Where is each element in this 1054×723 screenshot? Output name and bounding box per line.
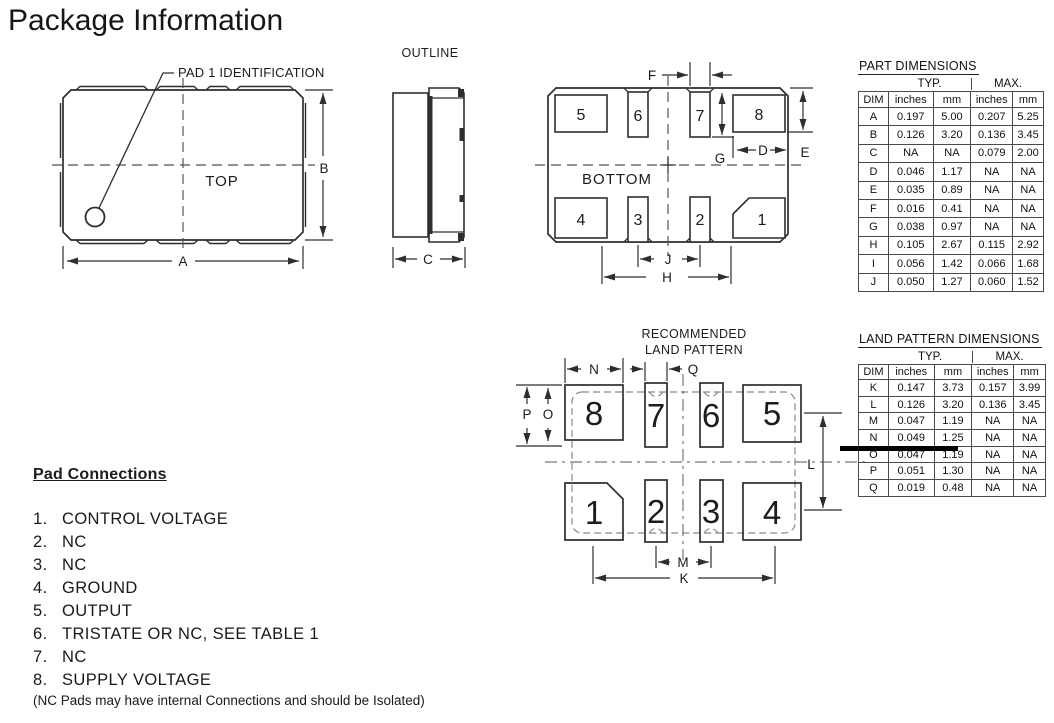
dimension-cell: 0.136 xyxy=(971,126,1013,144)
dimension-row: K0.1473.730.1573.99 xyxy=(859,380,1046,397)
dim-label-a: A xyxy=(178,254,187,269)
dimension-cell: 1.19 xyxy=(934,413,972,430)
dimension-cell: 5.25 xyxy=(1013,108,1044,126)
dimension-row: I0.0561.420.0661.68 xyxy=(859,255,1044,273)
dimension-row: H0.1052.670.1152.92 xyxy=(859,236,1044,254)
dimension-row: P0.0511.30NANA xyxy=(859,463,1046,480)
dimension-cell: 0.016 xyxy=(888,199,933,217)
col-header-max-mm: mm xyxy=(1013,92,1044,108)
dim-label-h: H xyxy=(662,270,672,285)
bottom-pad-7-number: 7 xyxy=(696,108,705,125)
dimension-cell: 0.035 xyxy=(888,181,933,199)
dimension-cell: NA xyxy=(1013,163,1044,181)
dimension-cell: 0.079 xyxy=(971,144,1013,162)
col-header-max-inches: inches xyxy=(971,92,1013,108)
part-dimensions-group-headers: TYP. MAX. xyxy=(858,78,1044,90)
dimension-row: N0.0491.25NANA xyxy=(859,430,1046,447)
dimension-cell: NA xyxy=(1014,446,1046,463)
dimension-row: D0.0461.17NANA xyxy=(859,163,1044,181)
pad-connection-function: TRISTATE OR NC, SEE TABLE 1 xyxy=(62,623,319,646)
dimension-cell: 3.20 xyxy=(934,396,972,413)
land-pad-1-number: 1 xyxy=(585,494,603,531)
bottom-pad-1-number: 1 xyxy=(758,212,767,229)
dimension-cell: 0.197 xyxy=(888,108,933,126)
dimension-cell: 3.20 xyxy=(933,126,971,144)
dimension-cell: NA xyxy=(888,144,933,162)
dimension-cell: NA xyxy=(933,144,971,162)
dim-label-q: Q xyxy=(688,362,699,377)
dimension-cell: 0.051 xyxy=(888,463,934,480)
dimension-cell: 0.060 xyxy=(971,273,1013,291)
dimension-cell: 3.45 xyxy=(1013,126,1044,144)
dimension-cell: 0.207 xyxy=(971,108,1013,126)
dim-label-k: K xyxy=(679,571,688,586)
dimension-row: E0.0350.89NANA xyxy=(859,181,1044,199)
outline-pad-marks xyxy=(458,89,464,241)
dimension-cell: E xyxy=(859,181,889,199)
strike-line xyxy=(840,446,958,451)
bottom-view: 5 6 7 8 4 3 2 1 BOTTOM F G xyxy=(535,62,813,285)
dimension-cell: B xyxy=(859,126,889,144)
dim-e xyxy=(787,88,813,132)
part-dimensions-body: A0.1975.000.2075.25B0.1263.200.1363.45CN… xyxy=(859,108,1044,292)
dimension-cell: 1.30 xyxy=(934,463,972,480)
dimension-cell: NA xyxy=(971,218,1013,236)
dimension-row: G0.0380.97NANA xyxy=(859,218,1044,236)
outline-view: OUTLINE C xyxy=(393,46,465,268)
land-pattern-dimensions-title: LAND PATTERN DIMENSIONS xyxy=(858,332,1042,348)
pad-connection-function: SUPPLY VOLTAGE xyxy=(62,669,211,692)
pad-connection-number: 2. xyxy=(33,531,62,554)
land-pad-2-number: 2 xyxy=(647,493,665,530)
pad-connection-number: 6. xyxy=(33,623,62,646)
dimension-cell: 0.48 xyxy=(934,480,972,497)
dim-label-c: C xyxy=(423,252,433,267)
dimension-cell: 1.27 xyxy=(933,273,971,291)
dim-g xyxy=(712,93,734,137)
dimension-cell: 1.42 xyxy=(933,255,971,273)
land-pad-4-number: 4 xyxy=(763,494,781,531)
dim-label-p: P xyxy=(522,407,531,422)
dimension-cell: 0.136 xyxy=(972,396,1014,413)
dim-label-b: B xyxy=(319,161,328,176)
pad-connection-item: 1.CONTROL VOLTAGE xyxy=(33,508,425,531)
pad-connection-number: 3. xyxy=(33,554,62,577)
dimension-cell: 3.45 xyxy=(1014,396,1046,413)
dimension-cell: NA xyxy=(972,430,1014,447)
top-view: PAD 1 IDENTIFICATION TOP B A xyxy=(52,65,333,269)
dimension-cell: P xyxy=(859,463,889,480)
dimension-cell: NA xyxy=(1014,413,1046,430)
pad-connection-number: 8. xyxy=(33,669,62,692)
dimension-row: M0.0471.19NANA xyxy=(859,413,1046,430)
typ-header: TYP. xyxy=(888,78,971,90)
bottom-pad-5-number: 5 xyxy=(577,107,586,124)
dimension-cell: 0.89 xyxy=(933,181,971,199)
dimension-cell: 1.25 xyxy=(934,430,972,447)
dim-label-g: G xyxy=(715,151,726,166)
land-pad-5-number: 5 xyxy=(763,395,781,432)
dim-label-d: D xyxy=(758,143,768,158)
dimension-cell: NA xyxy=(971,199,1013,217)
bottom-pad-2-number: 2 xyxy=(696,212,705,229)
col-header-max-inches: inches xyxy=(972,365,1014,380)
land-pattern-header-row: DIM inches mm inches mm xyxy=(859,365,1046,380)
dimension-cell: 0.115 xyxy=(971,236,1013,254)
pad-connections-title: Pad Connections xyxy=(33,466,425,484)
dimension-cell: NA xyxy=(971,181,1013,199)
land-pad-8-number: 8 xyxy=(585,395,603,432)
dimension-cell: 0.038 xyxy=(888,218,933,236)
pad-connection-number: 5. xyxy=(33,600,62,623)
dimension-cell: 0.126 xyxy=(888,126,933,144)
dimension-cell: C xyxy=(859,144,889,162)
dimension-cell: 0.056 xyxy=(888,255,933,273)
col-header-dim: DIM xyxy=(859,365,889,380)
dimension-cell: 3.99 xyxy=(1014,380,1046,397)
dim-f xyxy=(662,62,732,86)
dimension-cell: NA xyxy=(972,446,1014,463)
dimension-cell: H xyxy=(859,236,889,254)
dimension-cell: NA xyxy=(1014,463,1046,480)
bottom-pad-3-number: 3 xyxy=(634,212,643,229)
dimension-cell: 0.147 xyxy=(888,380,934,397)
bottom-pad-8-number: 8 xyxy=(755,107,764,124)
land-pattern-title-line1: RECOMMENDED xyxy=(641,327,746,341)
dimension-row: J0.0501.270.0601.52 xyxy=(859,273,1044,291)
dimension-row: CNANA0.0792.00 xyxy=(859,144,1044,162)
pad-connection-number: 7. xyxy=(33,646,62,669)
col-header-max-mm: mm xyxy=(1014,365,1046,380)
pad-connection-item: 2.NC xyxy=(33,531,425,554)
dimension-cell: 3.73 xyxy=(934,380,972,397)
col-header-typ-mm: mm xyxy=(933,92,971,108)
pad-connection-function: NC xyxy=(62,531,87,554)
max-header: MAX. xyxy=(972,351,1046,363)
dimension-cell: 1.17 xyxy=(933,163,971,181)
dimension-cell: 2.92 xyxy=(1013,236,1044,254)
dimension-cell: 0.105 xyxy=(888,236,933,254)
pad-connections-list: 1.CONTROL VOLTAGE2.NC3.NC4.GROUND5.OUTPU… xyxy=(33,508,425,692)
dimension-row: L0.1263.200.1363.45 xyxy=(859,396,1046,413)
land-pad-3-number: 3 xyxy=(702,493,720,530)
dimension-cell: NA xyxy=(1013,218,1044,236)
dimension-cell: NA xyxy=(1014,480,1046,497)
pad1-callout-label: PAD 1 IDENTIFICATION xyxy=(178,65,325,80)
land-pattern-body: K0.1473.730.1573.99L0.1263.200.1363.45M0… xyxy=(859,380,1046,497)
pad-connection-function: CONTROL VOLTAGE xyxy=(62,508,228,531)
dim-label-e: E xyxy=(800,145,809,160)
dimension-cell: K xyxy=(859,380,889,397)
dimension-cell: A xyxy=(859,108,889,126)
pad-connections-section: Pad Connections 1.CONTROL VOLTAGE2.NC3.N… xyxy=(33,466,425,708)
dimension-cell: 0.050 xyxy=(888,273,933,291)
land-pattern-group-headers: TYP. MAX. xyxy=(858,351,1046,363)
dimension-cell: D xyxy=(859,163,889,181)
bottom-view-label: BOTTOM xyxy=(582,171,652,188)
pad-connection-item: 7.NC xyxy=(33,646,425,669)
dimension-cell: 0.049 xyxy=(888,430,934,447)
dim-label-l: L xyxy=(807,457,815,472)
col-header-typ-mm: mm xyxy=(934,365,972,380)
pad-connection-number: 1. xyxy=(33,508,62,531)
dimension-row: F0.0160.41NANA xyxy=(859,199,1044,217)
dim-label-j: J xyxy=(665,252,672,267)
dimension-cell: 0.046 xyxy=(888,163,933,181)
dim-q xyxy=(630,362,682,381)
dimension-cell: 2.67 xyxy=(933,236,971,254)
dim-label-m: M xyxy=(677,555,688,570)
land-pattern-dimensions-table: LAND PATTERN DIMENSIONS TYP. MAX. DIM in… xyxy=(858,330,1046,497)
pad-connection-function: NC xyxy=(62,554,87,577)
col-header-typ-inches: inches xyxy=(888,92,933,108)
dimension-cell: 0.126 xyxy=(888,396,934,413)
typ-header: TYP. xyxy=(888,351,972,363)
dimension-row: B0.1263.200.1363.45 xyxy=(859,126,1044,144)
dimension-cell: NA xyxy=(971,163,1013,181)
dimension-cell: NA xyxy=(1013,181,1044,199)
pad-connection-number: 4. xyxy=(33,577,62,600)
dimension-cell: G xyxy=(859,218,889,236)
dimension-cell: F xyxy=(859,199,889,217)
bottom-view-center-cross xyxy=(660,157,676,173)
package-information-page: Package Information xyxy=(0,0,1054,723)
outline-lid xyxy=(393,93,428,237)
dimension-cell: 2.00 xyxy=(1013,144,1044,162)
pad1-id-mark xyxy=(86,208,105,227)
max-header: MAX. xyxy=(971,78,1044,90)
pad-connection-item: 5.OUTPUT xyxy=(33,600,425,623)
dim-label-o: O xyxy=(543,407,554,422)
land-pattern-title-line2: LAND PATTERN xyxy=(645,343,743,357)
pad-connections-note: (NC Pads may have internal Connections a… xyxy=(33,693,425,708)
bottom-pads xyxy=(555,92,785,242)
pad-connection-item: 4.GROUND xyxy=(33,577,425,600)
part-dimensions-header-row: DIM inches mm inches mm xyxy=(859,92,1044,108)
dimension-cell: N xyxy=(859,430,889,447)
dim-label-n: N xyxy=(589,362,599,377)
land-pad-7-number: 7 xyxy=(647,397,665,434)
land-pad-6-number: 6 xyxy=(702,397,720,434)
land-pattern: RECOMMENDED LAND PATTERN xyxy=(516,327,866,586)
dimension-cell: M xyxy=(859,413,889,430)
col-header-dim: DIM xyxy=(859,92,889,108)
dimension-row: Q0.0190.48NANA xyxy=(859,480,1046,497)
pad-connection-function: NC xyxy=(62,646,87,669)
dimension-cell: NA xyxy=(1014,430,1046,447)
dimension-cell: NA xyxy=(1013,199,1044,217)
pad-connection-function: OUTPUT xyxy=(62,600,132,623)
top-view-label: TOP xyxy=(205,173,239,190)
outline-base xyxy=(429,88,464,242)
dimension-cell: 0.066 xyxy=(971,255,1013,273)
dimension-cell: 0.157 xyxy=(972,380,1014,397)
pad-connection-function: GROUND xyxy=(62,577,138,600)
bottom-pad-4-number: 4 xyxy=(577,212,586,229)
outline-title: OUTLINE xyxy=(402,46,459,60)
dimension-cell: 0.41 xyxy=(933,199,971,217)
part-dimensions-table: PART DIMENSIONS TYP. MAX. DIM inches mm … xyxy=(858,57,1044,292)
dimension-cell: 5.00 xyxy=(933,108,971,126)
dimension-cell: I xyxy=(859,255,889,273)
dimension-row: A0.1975.000.2075.25 xyxy=(859,108,1044,126)
bottom-pad-6-number: 6 xyxy=(634,108,643,125)
dimension-cell: 0.019 xyxy=(888,480,934,497)
part-dimensions-title: PART DIMENSIONS xyxy=(858,59,979,75)
dimension-cell: NA xyxy=(972,463,1014,480)
pad-connection-item: 3.NC xyxy=(33,554,425,577)
dimension-cell: 0.97 xyxy=(933,218,971,236)
dimension-cell: J xyxy=(859,273,889,291)
pad-connection-item: 8.SUPPLY VOLTAGE xyxy=(33,669,425,692)
dimension-cell: NA xyxy=(972,480,1014,497)
dimension-cell: 1.68 xyxy=(1013,255,1044,273)
col-header-typ-inches: inches xyxy=(888,365,934,380)
dimension-cell: NA xyxy=(972,413,1014,430)
pad1-callout-leader xyxy=(99,73,174,208)
dimension-cell: L xyxy=(859,396,889,413)
pad-connection-item: 6.TRISTATE OR NC, SEE TABLE 1 xyxy=(33,623,425,646)
dimension-cell: Q xyxy=(859,480,889,497)
dim-label-f: F xyxy=(648,68,656,83)
dimension-cell: 1.52 xyxy=(1013,273,1044,291)
dimension-cell: 0.047 xyxy=(888,413,934,430)
